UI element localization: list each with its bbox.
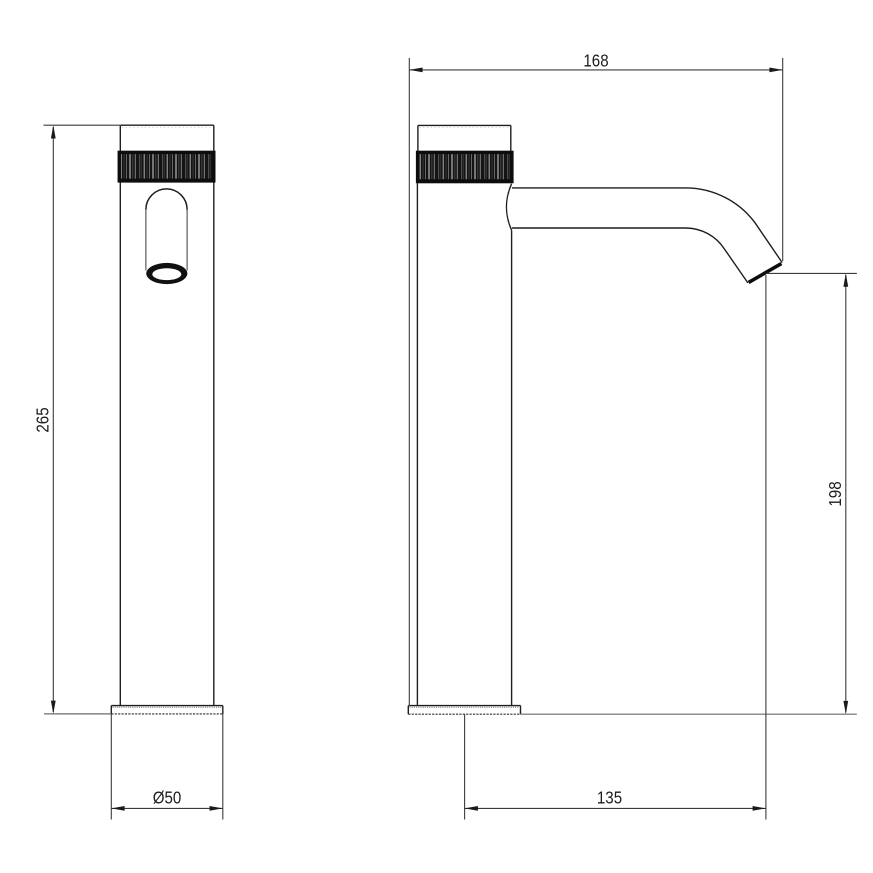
svg-text:265: 265	[32, 407, 53, 432]
svg-text:168: 168	[583, 50, 608, 71]
svg-text:198: 198	[825, 481, 846, 506]
svg-text:135: 135	[597, 787, 622, 808]
svg-text:Ø50: Ø50	[153, 787, 182, 808]
